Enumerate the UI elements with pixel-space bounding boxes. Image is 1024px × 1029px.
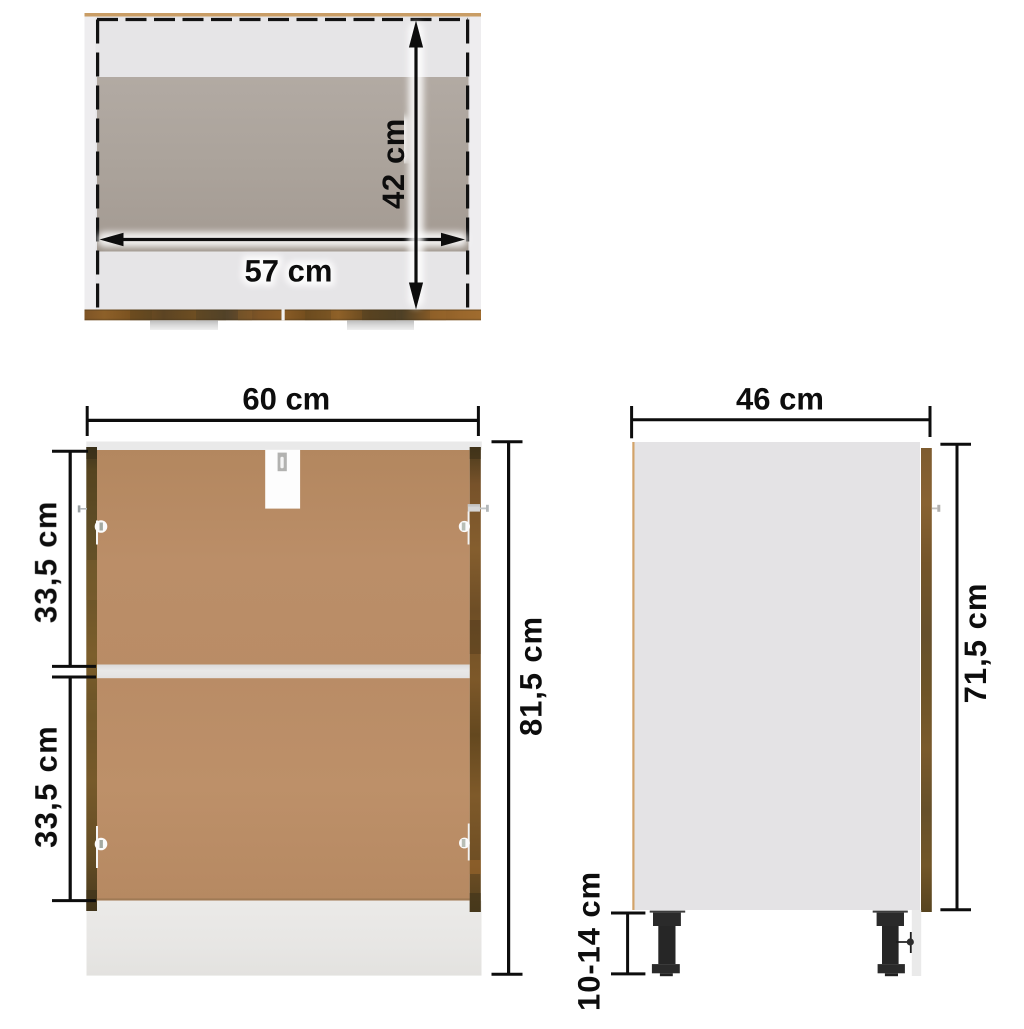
svg-text:33,5 cm: 33,5 cm (29, 725, 64, 848)
svg-text:60 cm: 60 cm (242, 382, 330, 417)
svg-text:71,5 cm: 71,5 cm (958, 583, 993, 704)
svg-text:46 cm: 46 cm (736, 381, 824, 416)
svg-text:42 cm: 42 cm (376, 118, 411, 209)
svg-text:33,5 cm: 33,5 cm (28, 500, 63, 623)
svg-text:57 cm: 57 cm (245, 254, 333, 289)
svg-text:81,5 cm: 81,5 cm (514, 616, 549, 736)
svg-text:10-14 cm: 10-14 cm (572, 871, 607, 1011)
